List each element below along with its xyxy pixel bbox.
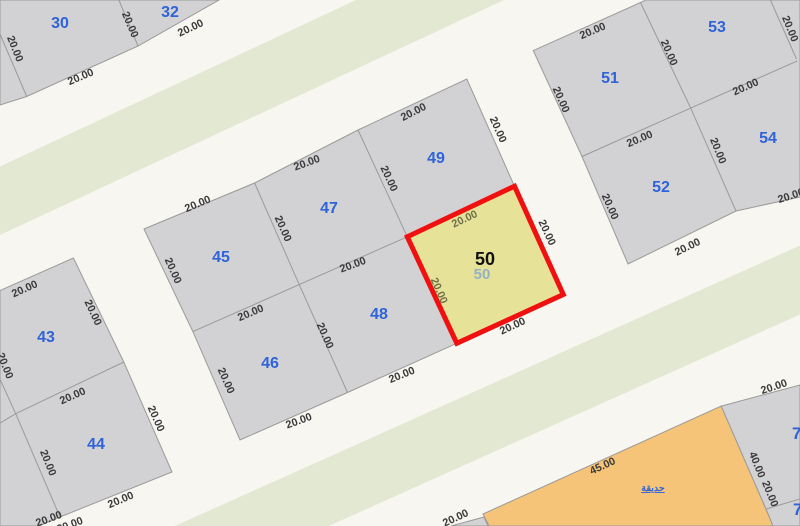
svg-text:47: 47	[320, 200, 338, 217]
svg-text:50: 50	[475, 249, 495, 269]
svg-text:46: 46	[261, 355, 279, 372]
svg-text:32: 32	[161, 4, 179, 21]
svg-text:54: 54	[759, 130, 777, 147]
svg-text:49: 49	[427, 150, 445, 167]
svg-text:7: 7	[793, 500, 800, 519]
svg-text:حديقة: حديقة	[641, 483, 665, 494]
svg-text:44: 44	[87, 436, 105, 453]
svg-text:53: 53	[708, 19, 726, 36]
svg-text:7: 7	[792, 424, 800, 443]
svg-text:45: 45	[212, 249, 230, 266]
svg-text:30: 30	[51, 15, 69, 32]
svg-text:52: 52	[652, 179, 670, 196]
svg-text:48: 48	[370, 306, 388, 323]
svg-text:51: 51	[601, 70, 619, 87]
svg-text:43: 43	[37, 329, 55, 346]
